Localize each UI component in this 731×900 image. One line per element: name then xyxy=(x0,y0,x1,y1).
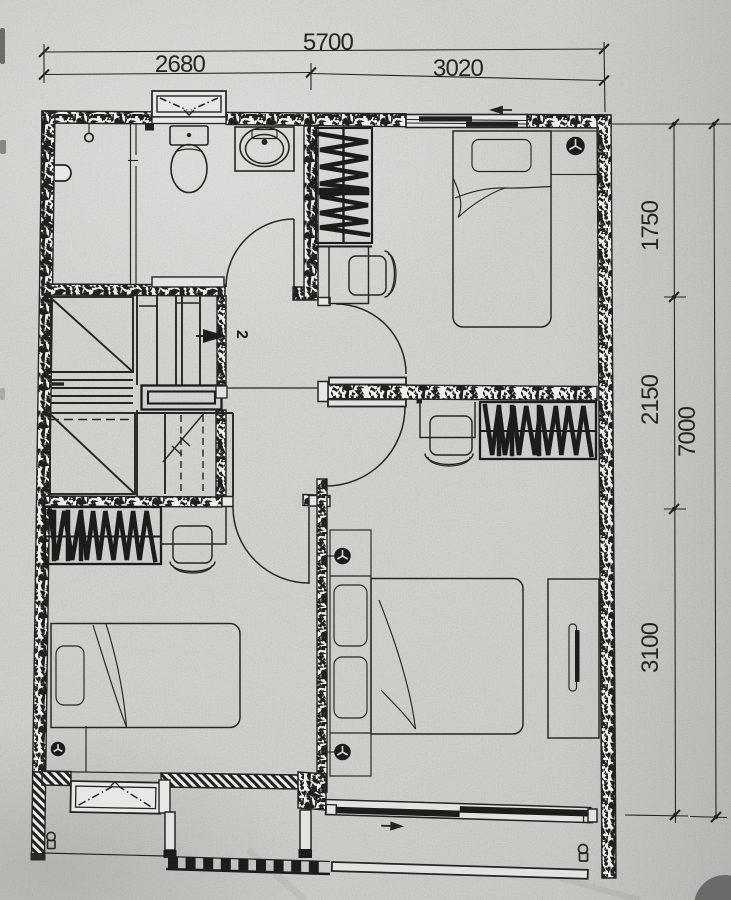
svg-text:5700: 5700 xyxy=(303,29,354,56)
svg-text:3020: 3020 xyxy=(433,55,484,82)
svg-text:2: 2 xyxy=(233,330,250,339)
svg-text:7000: 7000 xyxy=(674,406,701,457)
svg-text:3100: 3100 xyxy=(637,622,664,673)
svg-text:2150: 2150 xyxy=(637,374,664,425)
svg-text:1750: 1750 xyxy=(637,200,664,251)
svg-text:2680: 2680 xyxy=(155,51,206,78)
